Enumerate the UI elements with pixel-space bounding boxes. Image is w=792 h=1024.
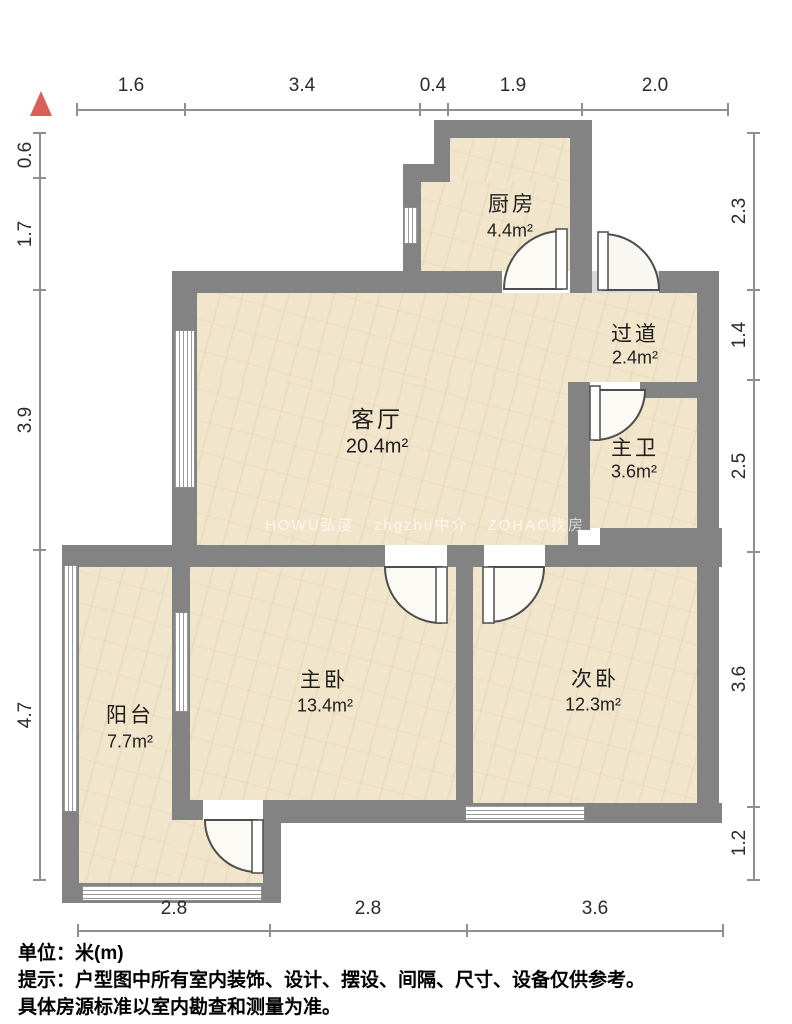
balcony-floor [172,820,263,883]
dim-line-top [77,109,728,111]
dim-tick [747,806,760,808]
footer-tip-line2: 具体房源标准以室内勘查和测量为准。 [18,994,645,1021]
room-label-hallway: 过道 [611,318,659,348]
dim-label-left: 4.7 [15,702,37,728]
room-area-master: 13.4m² [297,696,353,717]
dim-label-left: 3.9 [15,407,37,433]
wall [570,120,592,293]
footer-tip-line1: 提示：户型图中所有室内装饰、设计、摆设、间隔、尺寸、设备仅供参考。 [18,967,645,994]
dim-tick [581,103,583,116]
wall [434,120,592,138]
dim-tick [747,132,760,134]
living-window [174,330,195,488]
room-label-kitchen: 厨房 [488,188,536,218]
kitchen-doorway [502,271,570,293]
dim-tick [747,289,760,291]
bath-doorway [590,382,640,398]
watermark: HOWU弘度 · zhgzhu中介 · ZOHAO找房 [240,514,610,535]
floorplan-canvas: HOWU弘度 · zhgzhu中介 · ZOHAO找房 厨房 4.4m² 过道 … [0,0,792,1024]
dim-tick [76,103,78,116]
dim-tick [419,103,421,116]
room-area-kitchen: 4.4m² [487,221,533,242]
dim-label-right: 1.2 [729,830,751,856]
dim-tick [722,924,724,937]
dim-label-right: 2.3 [729,198,751,224]
wall [600,528,722,545]
dim-label-top: 1.9 [500,75,526,97]
dim-tick [447,103,449,116]
dim-label-left: 0.6 [15,142,37,168]
second-bottom-window [465,805,585,821]
dim-tick [466,924,468,937]
wall [456,567,473,803]
entry-doorway [592,271,659,293]
dim-label-right: 3.6 [729,666,751,692]
wall [172,800,203,820]
dim-label-left: 1.7 [15,221,37,247]
dim-tick [269,924,271,937]
dim-line-bottom [78,930,724,932]
room-area-balcony: 7.7m² [107,732,153,753]
balcony-doorway [203,800,263,820]
dim-label-bottom: 3.6 [582,898,608,920]
north-arrow-icon [30,91,52,116]
wall [263,800,473,823]
dim-label-right: 2.5 [729,453,751,479]
dim-tick [184,103,186,116]
footer-notes: 单位：米(m) 提示：户型图中所有室内装饰、设计、摆设、间隔、尺寸、设备仅供参考… [18,940,645,1021]
room-area-second: 12.3m² [565,695,621,716]
dim-tick [33,879,46,881]
wall [172,271,502,293]
dim-label-top: 2.0 [642,75,668,97]
room-label-balcony: 阳台 [106,699,154,729]
dim-label-bottom: 2.8 [355,898,381,920]
dim-line-left [39,133,41,880]
dim-tick [33,132,46,134]
second-doorway [484,545,545,567]
dim-tick [33,177,46,179]
dim-tick [747,551,760,553]
dim-label-bottom: 2.8 [161,898,187,920]
room-area-bath: 3.6m² [611,462,657,483]
dim-label-top: 0.4 [420,75,446,97]
room-label-bath: 主卫 [611,432,659,462]
dim-tick [33,289,46,291]
room-label-master: 主卧 [300,664,348,694]
master-doorway [385,545,447,567]
dim-label-right: 1.4 [729,322,751,348]
wall [640,382,697,398]
room-area-living: 20.4m² [346,436,408,459]
dim-tick [33,549,46,551]
kitchen-floor [450,138,570,182]
dim-tick [727,103,729,116]
dim-tick [77,924,79,937]
dim-line-right [753,133,755,880]
room-area-hallway: 2.4m² [612,348,658,369]
dim-label-top: 3.4 [289,75,315,97]
room-label-second: 次卧 [571,663,619,693]
balcony-side-window [63,565,78,812]
room-label-living: 客厅 [351,400,403,434]
dim-tick [747,879,760,881]
master-balcony-window [174,612,189,712]
dim-label-top: 1.6 [118,75,144,97]
footer-unit: 单位：米(m) [18,940,645,967]
dim-tick [747,379,760,381]
kitchen-window [403,207,418,244]
